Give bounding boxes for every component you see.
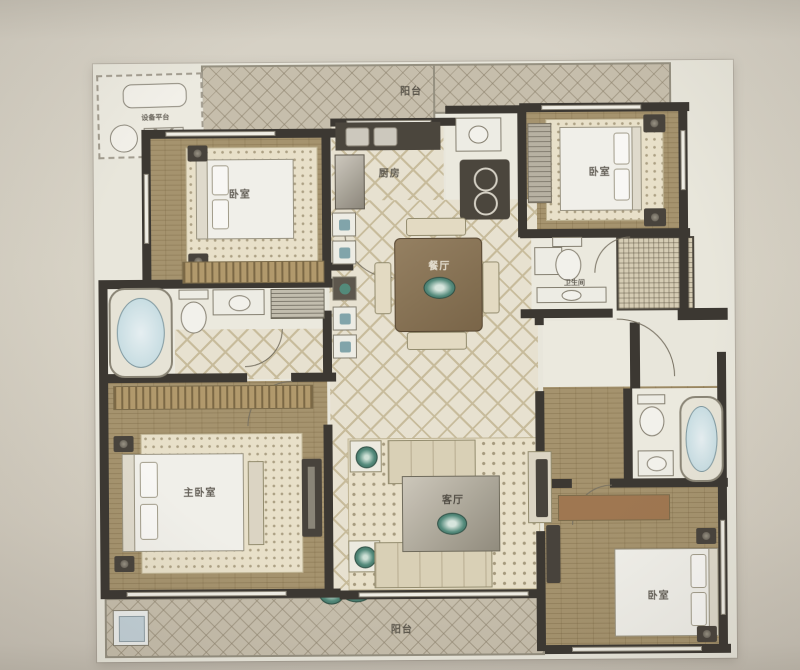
nightstand: [187, 145, 207, 161]
nightstand: [114, 556, 134, 572]
dining-room-label: 餐厅: [428, 257, 450, 272]
tv-icon: [536, 459, 548, 517]
wall: [536, 531, 546, 651]
toilet-bowl: [639, 406, 664, 436]
cabinet-box: [332, 212, 356, 236]
equipment-circle: [110, 124, 139, 153]
cabinet-louver: [270, 289, 324, 319]
nightstand: [696, 528, 716, 544]
pillow: [212, 165, 229, 195]
basin-icon: [468, 125, 488, 143]
bedroom-top-left-label: 卧室: [229, 186, 251, 201]
bathroom-label: 卫生间: [564, 278, 585, 288]
cabinet-box: [332, 240, 356, 264]
dining-chair: [482, 261, 499, 313]
wall: [520, 228, 690, 238]
basin-icon: [229, 295, 251, 311]
wall: [517, 105, 527, 237]
equipment-platform-label: 设备平台: [141, 112, 169, 123]
tv-icon: [308, 467, 315, 529]
bathtub-water: [117, 298, 165, 368]
bed-bench: [248, 461, 265, 545]
toilet-bowl: [181, 301, 207, 333]
bedroom-top-right-label: 卧室: [589, 163, 611, 178]
wall: [323, 425, 333, 598]
nightstand: [697, 626, 717, 642]
wall: [535, 309, 544, 325]
pillow: [212, 199, 229, 229]
bedroom-bottom-right-label: 卧室: [648, 587, 670, 602]
cabinet-box: [332, 276, 356, 300]
window: [572, 646, 702, 652]
bed-headboard: [708, 548, 719, 636]
plant-icon: [354, 546, 376, 568]
bed-headboard: [122, 454, 136, 552]
dining-table: 餐厅: [394, 238, 483, 333]
basin-icon: [562, 290, 582, 301]
wardrobe: [182, 261, 324, 284]
nightstand: [114, 436, 134, 452]
plate-icon: [423, 277, 455, 299]
window: [541, 104, 641, 110]
coffee-table: 客厅: [402, 475, 501, 552]
wardrobe: [527, 123, 552, 203]
side-table: [350, 440, 382, 472]
vanity: [536, 287, 606, 303]
living-room-label: 客厅: [442, 491, 464, 506]
sink-basin-icon: [373, 127, 397, 146]
fridge: [335, 154, 365, 209]
wall: [623, 388, 633, 480]
decor-icon: [339, 219, 350, 230]
master-bedroom-label: 主卧室: [183, 484, 216, 499]
dining-chair: [374, 262, 391, 314]
basin-icon: [647, 456, 667, 471]
dining-chair: [407, 332, 467, 350]
washer-door-icon: [119, 616, 145, 642]
balcony-bottom-label: 阳台: [391, 621, 413, 636]
washer: [113, 610, 149, 646]
toilet-bowl: [555, 249, 581, 281]
decor-icon: [339, 283, 350, 294]
decor-icon: [339, 247, 350, 258]
stove: [460, 159, 510, 219]
photo-of-floorplan: { "rooms": { "equipment_platform": "设备平台…: [0, 0, 800, 670]
window: [680, 130, 685, 190]
burner-icon: [474, 167, 498, 191]
cabinet-box: [333, 334, 357, 358]
vanity: [638, 450, 674, 476]
bed-headboard: [196, 159, 209, 239]
kitchen-counter: [335, 122, 440, 151]
decor-icon: [340, 341, 351, 352]
window: [720, 520, 726, 615]
entry-door-arc: [617, 318, 675, 376]
wardrobe: [113, 385, 313, 410]
balcony-bottom-area: [105, 595, 545, 658]
toilet-tank: [178, 289, 208, 299]
pillow: [140, 462, 158, 498]
vanity: [212, 289, 264, 315]
pillow: [614, 168, 630, 200]
burner-icon: [474, 191, 498, 215]
sink-basin-icon: [345, 127, 369, 146]
decor-plate-icon: [437, 513, 467, 535]
nightstand: [644, 208, 666, 226]
wall: [445, 105, 525, 114]
bed-headboard: [631, 126, 642, 210]
wardrobe: [558, 494, 670, 521]
equipment-unit: [122, 83, 187, 109]
bathtub-water: [685, 406, 717, 472]
toilet-tank: [552, 237, 582, 247]
toilet-tank: [637, 394, 665, 404]
plant-icon: [356, 446, 378, 468]
pillow: [613, 132, 629, 164]
nightstand: [643, 114, 665, 132]
pillow: [690, 554, 706, 588]
pillow: [140, 504, 158, 540]
decor-icon: [340, 313, 351, 324]
floor-plan: 阳台 阳台 设备平台: [93, 60, 737, 662]
pillow: [691, 592, 707, 626]
dining-chair: [406, 218, 466, 236]
balcony-top-label: 阳台: [400, 82, 422, 97]
window: [165, 131, 275, 137]
tv-cabinet: [302, 459, 323, 537]
wall: [321, 129, 331, 281]
prep-sink: [455, 117, 501, 151]
window: [144, 174, 149, 244]
cabinet-box: [333, 306, 357, 330]
kitchen-label: 厨房: [379, 165, 401, 180]
tv-cabinet: [546, 525, 560, 583]
wall: [323, 311, 332, 381]
